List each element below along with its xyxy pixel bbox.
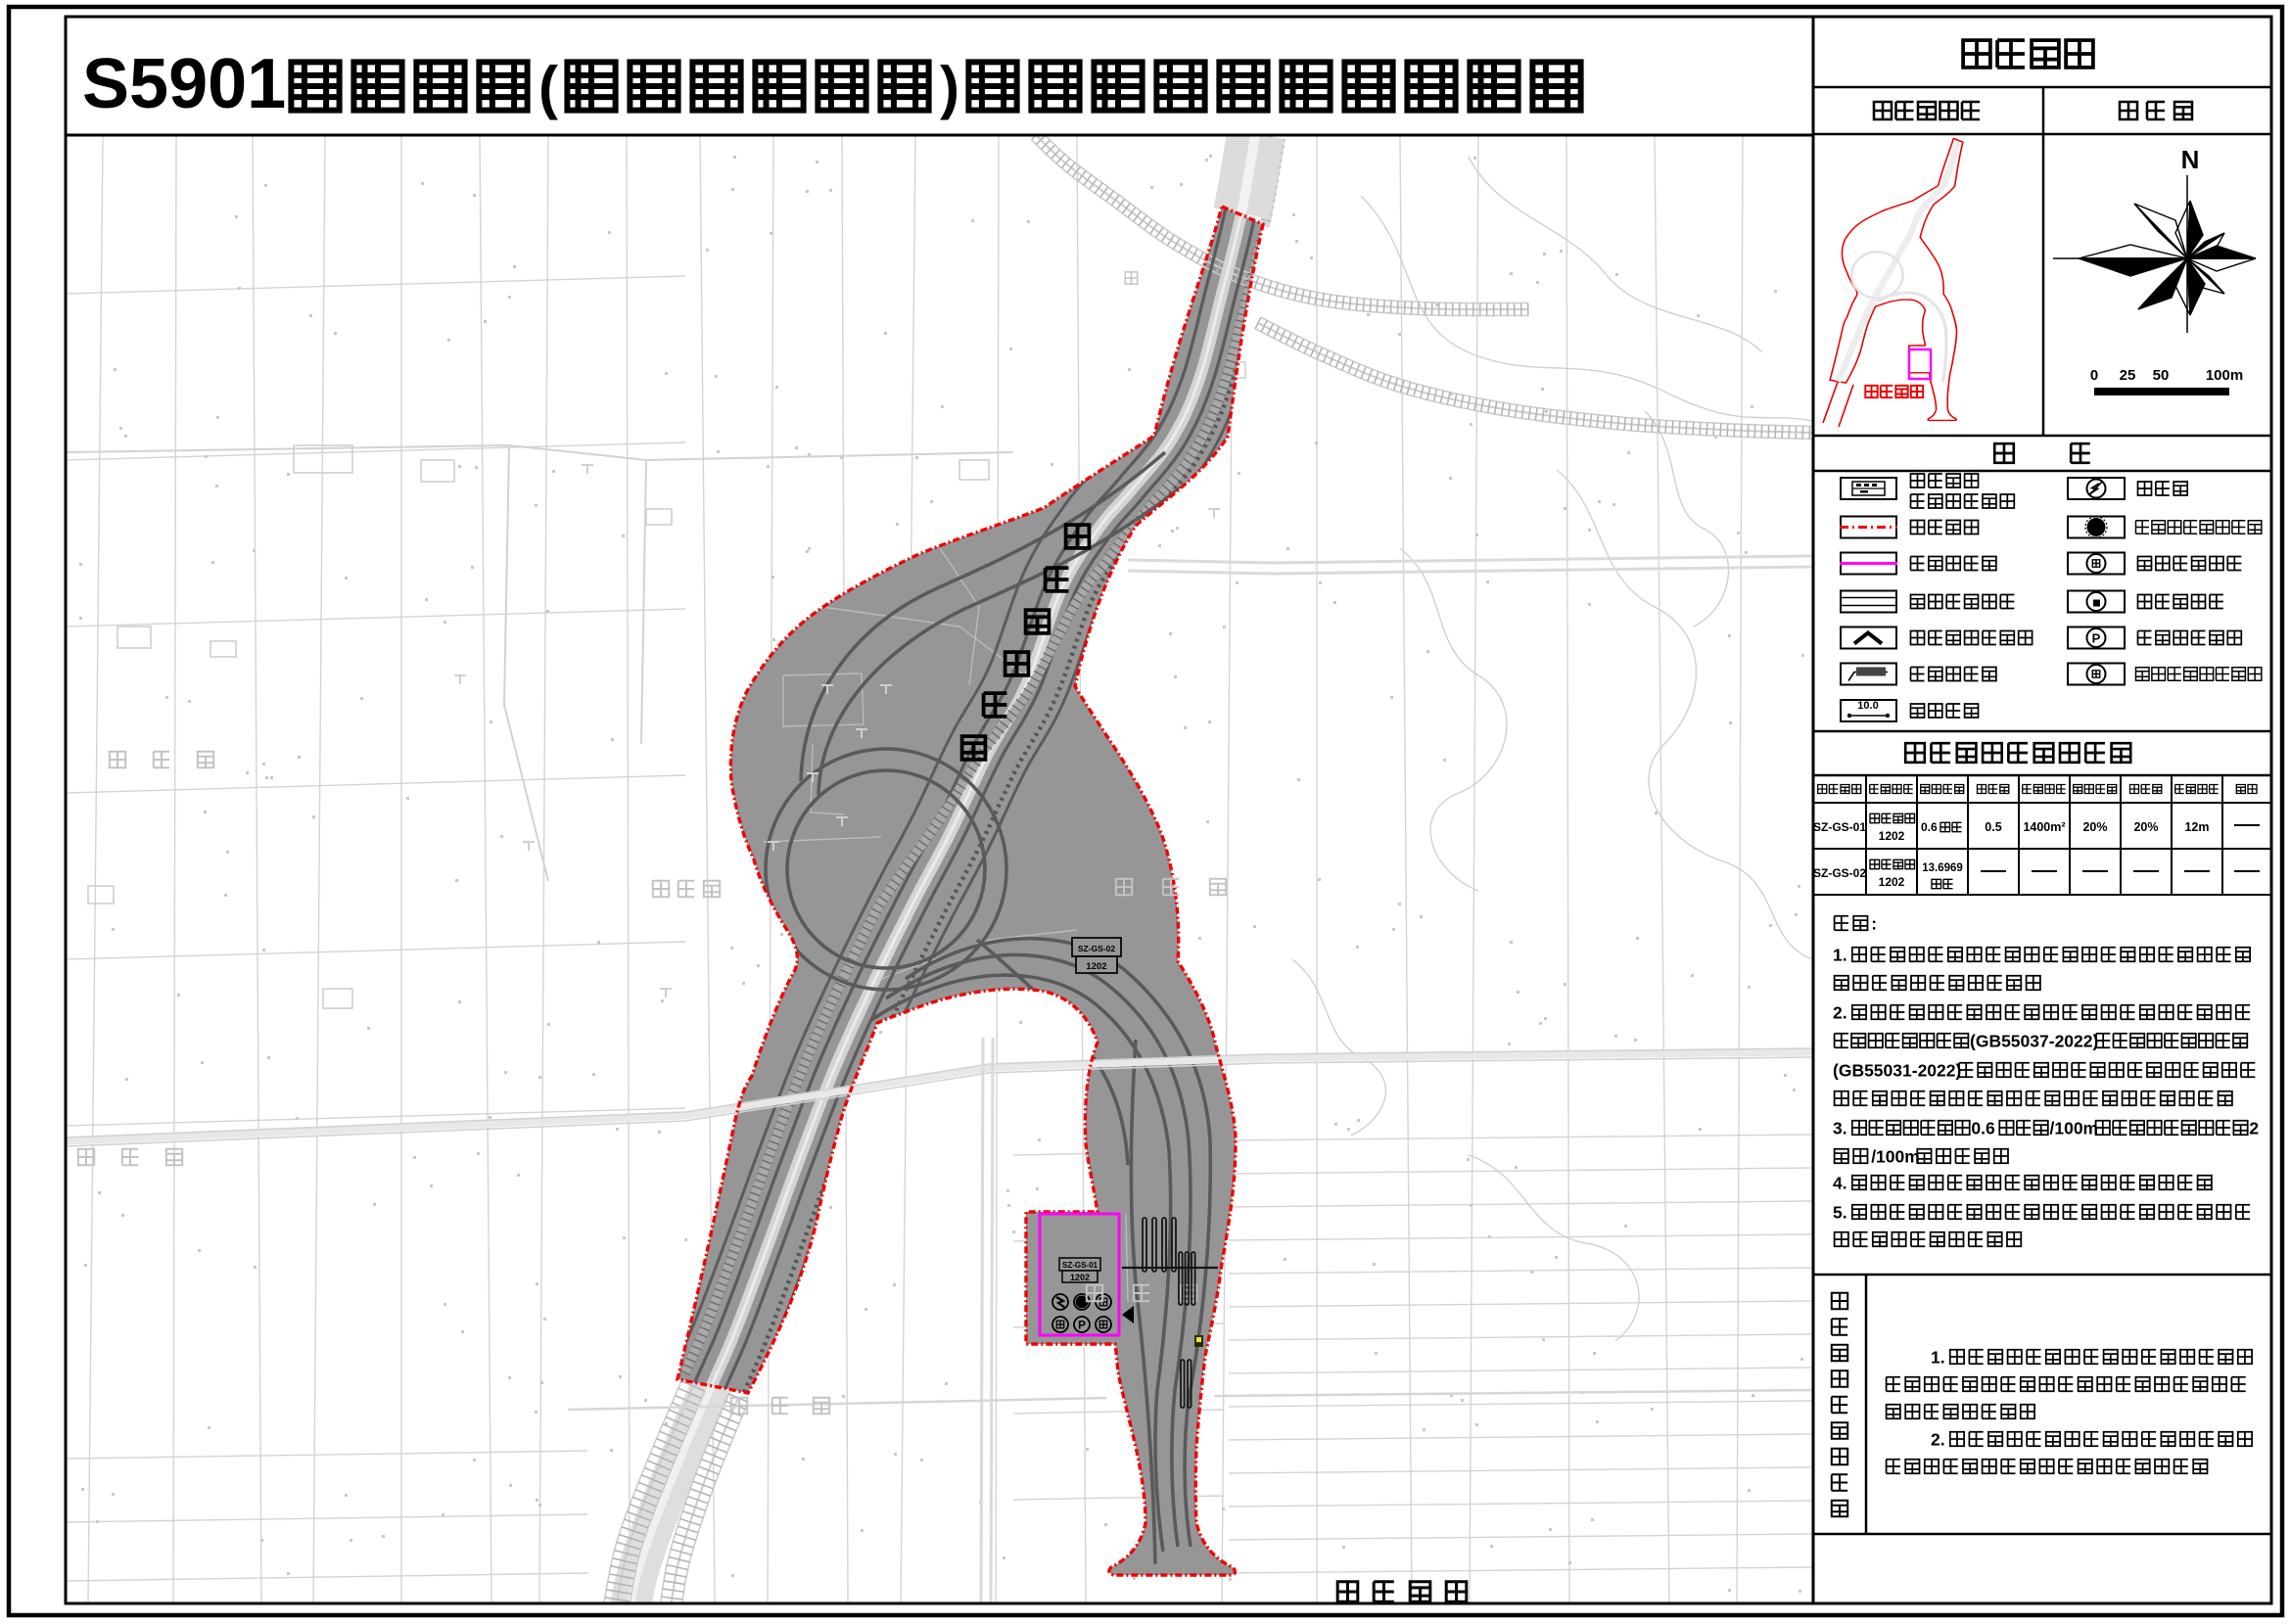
svg-text:/100m: /100m (2050, 1118, 2099, 1137)
svg-text:1202: 1202 (1879, 829, 1905, 843)
svg-text:1400m²: 1400m² (2023, 820, 2065, 834)
svg-text:20%: 20% (2082, 820, 2107, 834)
svg-text:SZ-GS-02: SZ-GS-02 (1813, 866, 1866, 880)
svg-text:2: 2 (2249, 1118, 2259, 1137)
svg-text:(GB55037-2022): (GB55037-2022) (1970, 1031, 2098, 1050)
svg-text:N: N (2181, 145, 2200, 174)
svg-text:50: 50 (2153, 367, 2170, 384)
svg-text:SZ-GS-01: SZ-GS-01 (1062, 1261, 1098, 1270)
svg-text:/100m: /100m (1871, 1146, 1920, 1166)
svg-text:1.: 1. (1833, 945, 1847, 964)
svg-text:1202: 1202 (1070, 1273, 1090, 1282)
svg-text:S5901: S5901 (82, 45, 286, 123)
svg-text:12m: 12m (2184, 820, 2209, 834)
svg-text:1202: 1202 (1879, 875, 1905, 889)
svg-text:SZ-GS-02: SZ-GS-02 (1078, 944, 1116, 953)
svg-text:20%: 20% (2133, 820, 2158, 834)
svg-text:3.: 3. (1833, 1118, 1847, 1137)
svg-text:P: P (1078, 1319, 1086, 1332)
svg-text:0.5: 0.5 (1985, 820, 2001, 834)
svg-text:0.6: 0.6 (1971, 1118, 1995, 1137)
svg-text:4.: 4. (1833, 1173, 1847, 1192)
svg-text:(: ( (538, 55, 558, 120)
svg-text:100m: 100m (2206, 367, 2243, 384)
svg-text:2.: 2. (1833, 1002, 1847, 1022)
svg-text:0: 0 (2090, 367, 2098, 384)
svg-text:5.: 5. (1833, 1202, 1847, 1222)
svg-text:10.0: 10.0 (1857, 700, 1878, 712)
svg-text:13.6969: 13.6969 (1922, 862, 1963, 874)
svg-text:1.: 1. (1931, 1347, 1945, 1367)
svg-text:0.6: 0.6 (1921, 820, 1938, 834)
svg-text:2.: 2. (1931, 1429, 1945, 1449)
svg-text:): ) (940, 55, 959, 120)
svg-text:(GB55031-2022): (GB55031-2022) (1833, 1060, 1961, 1080)
svg-text:SZ-GS-01: SZ-GS-01 (1813, 820, 1866, 834)
svg-text:25: 25 (2120, 367, 2136, 384)
svg-text:1202: 1202 (1086, 961, 1106, 972)
svg-text:P: P (2092, 631, 2101, 646)
svg-text::: : (1871, 913, 1877, 933)
